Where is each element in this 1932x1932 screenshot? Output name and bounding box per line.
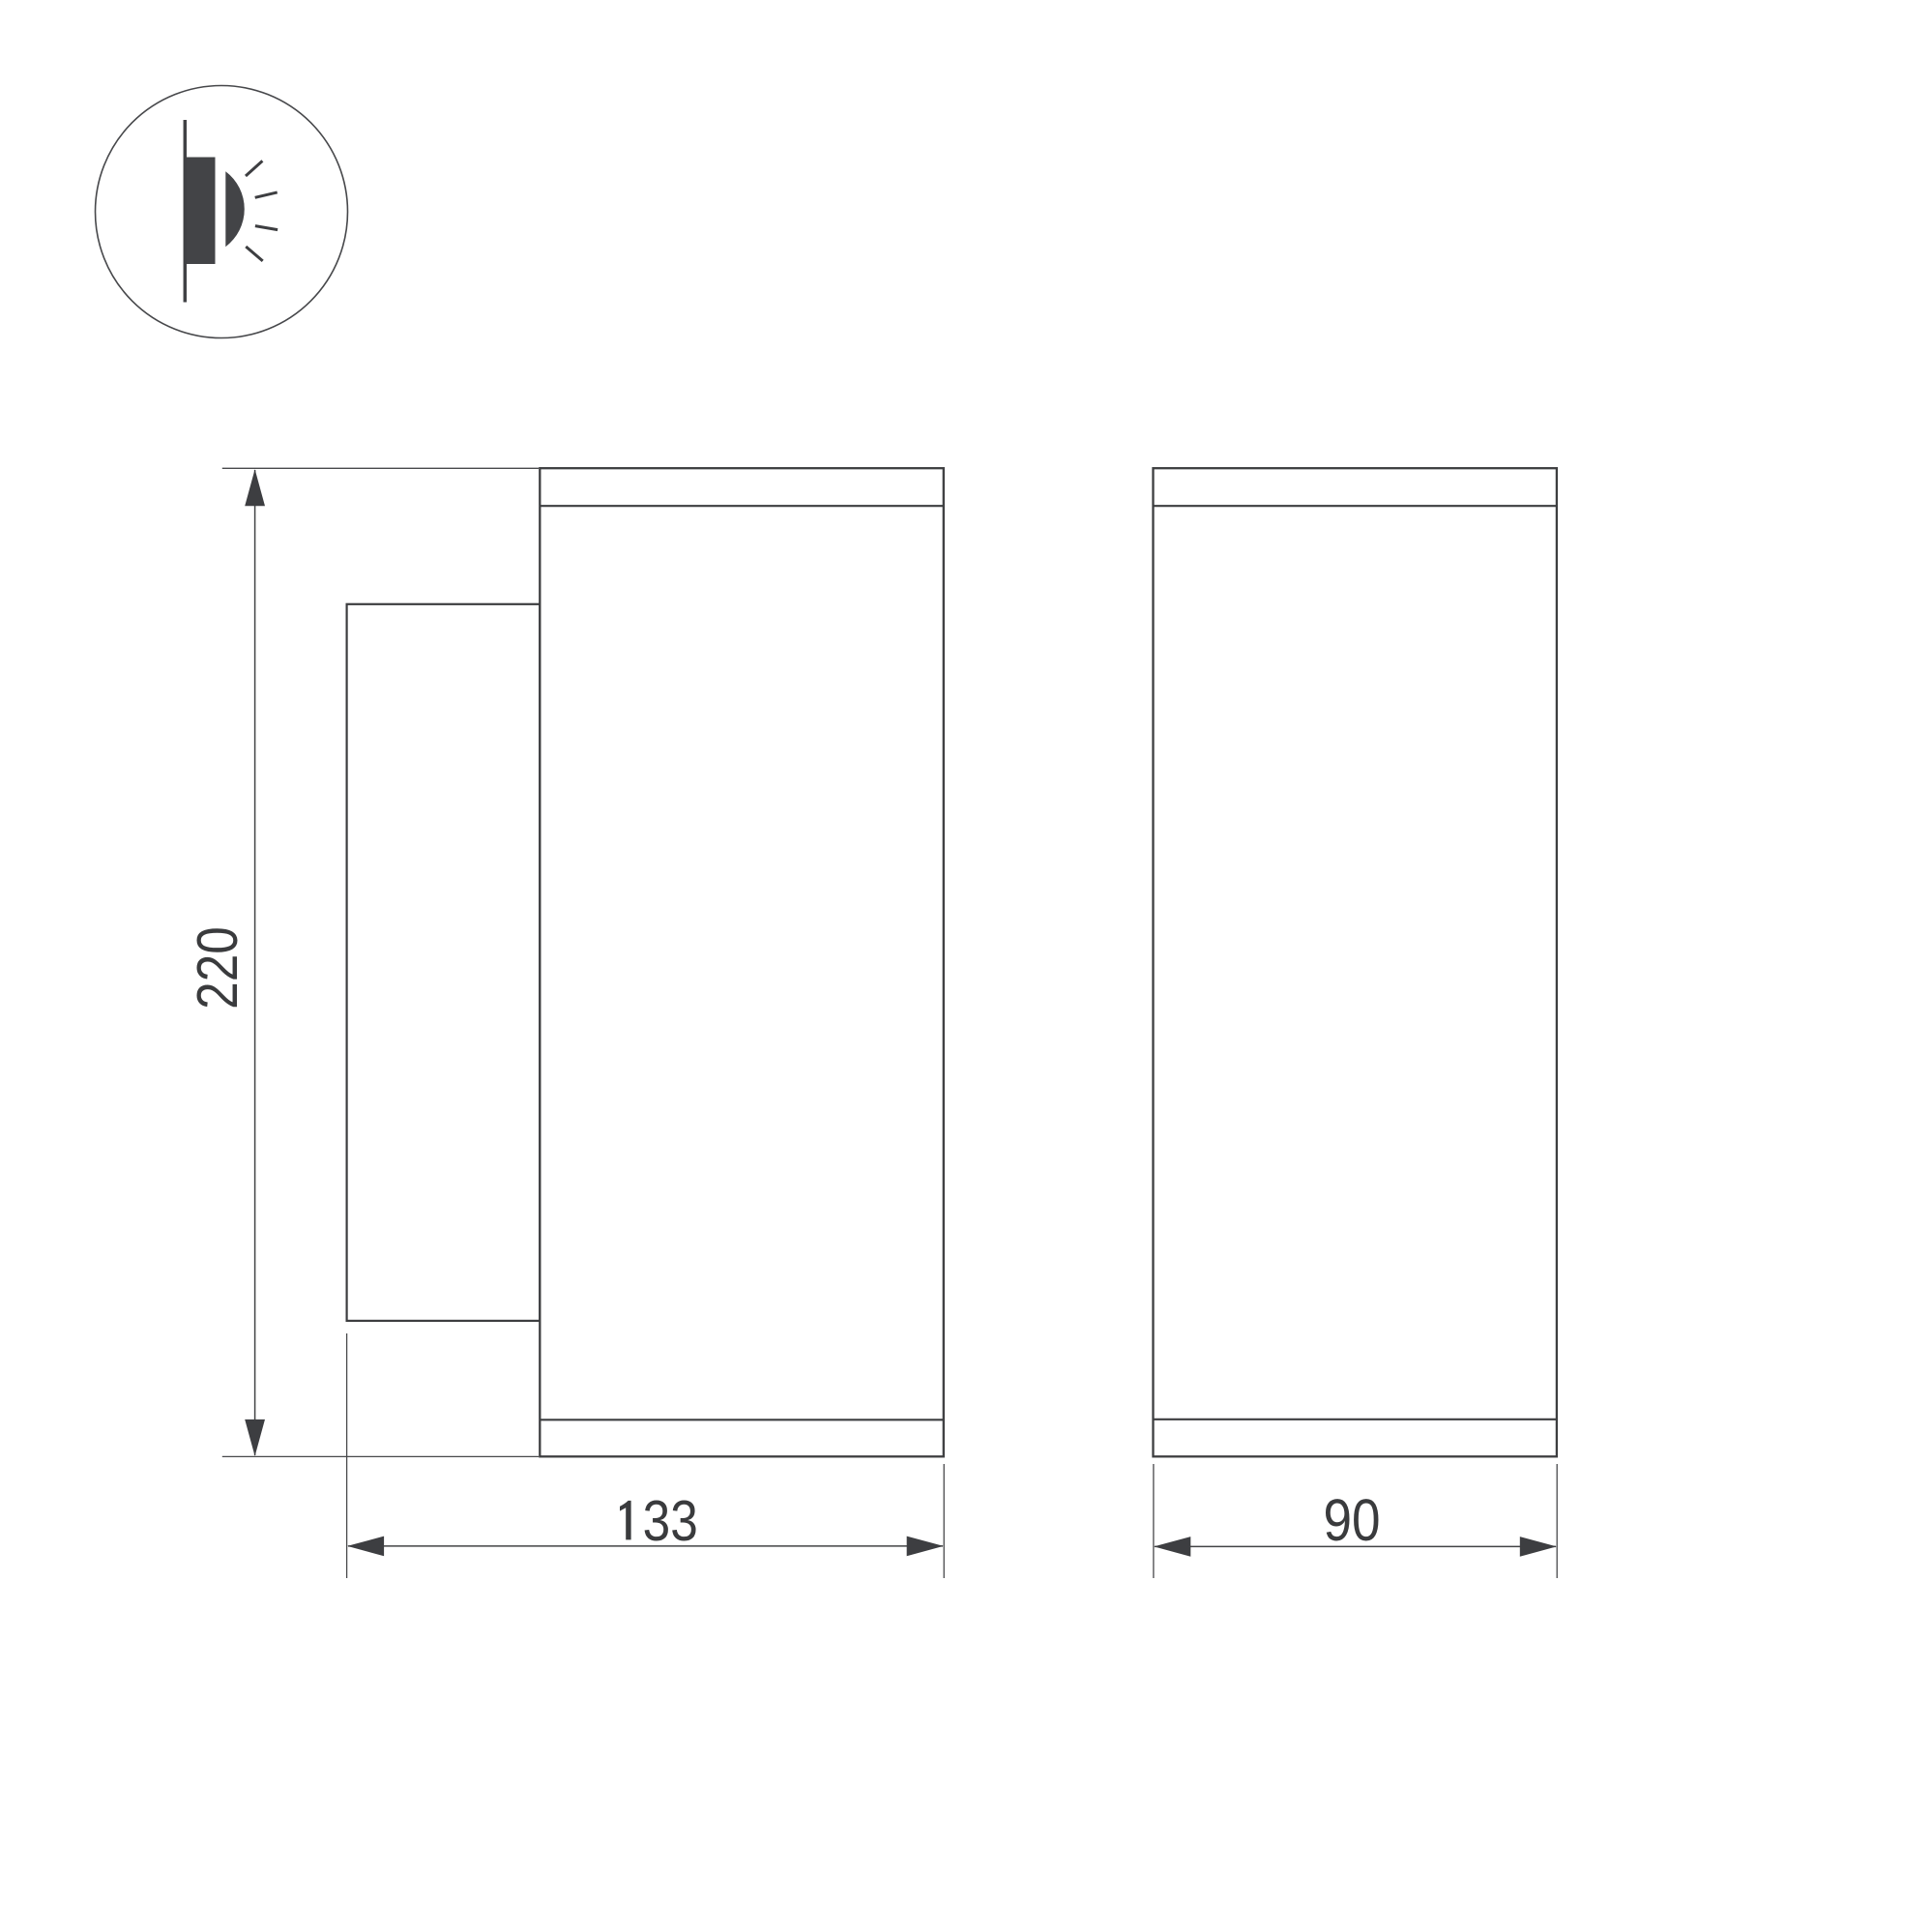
svg-text:33: 33 <box>643 1489 698 1553</box>
svg-text:90: 90 <box>1323 1488 1380 1554</box>
svg-text:220: 220 <box>186 926 249 1010</box>
